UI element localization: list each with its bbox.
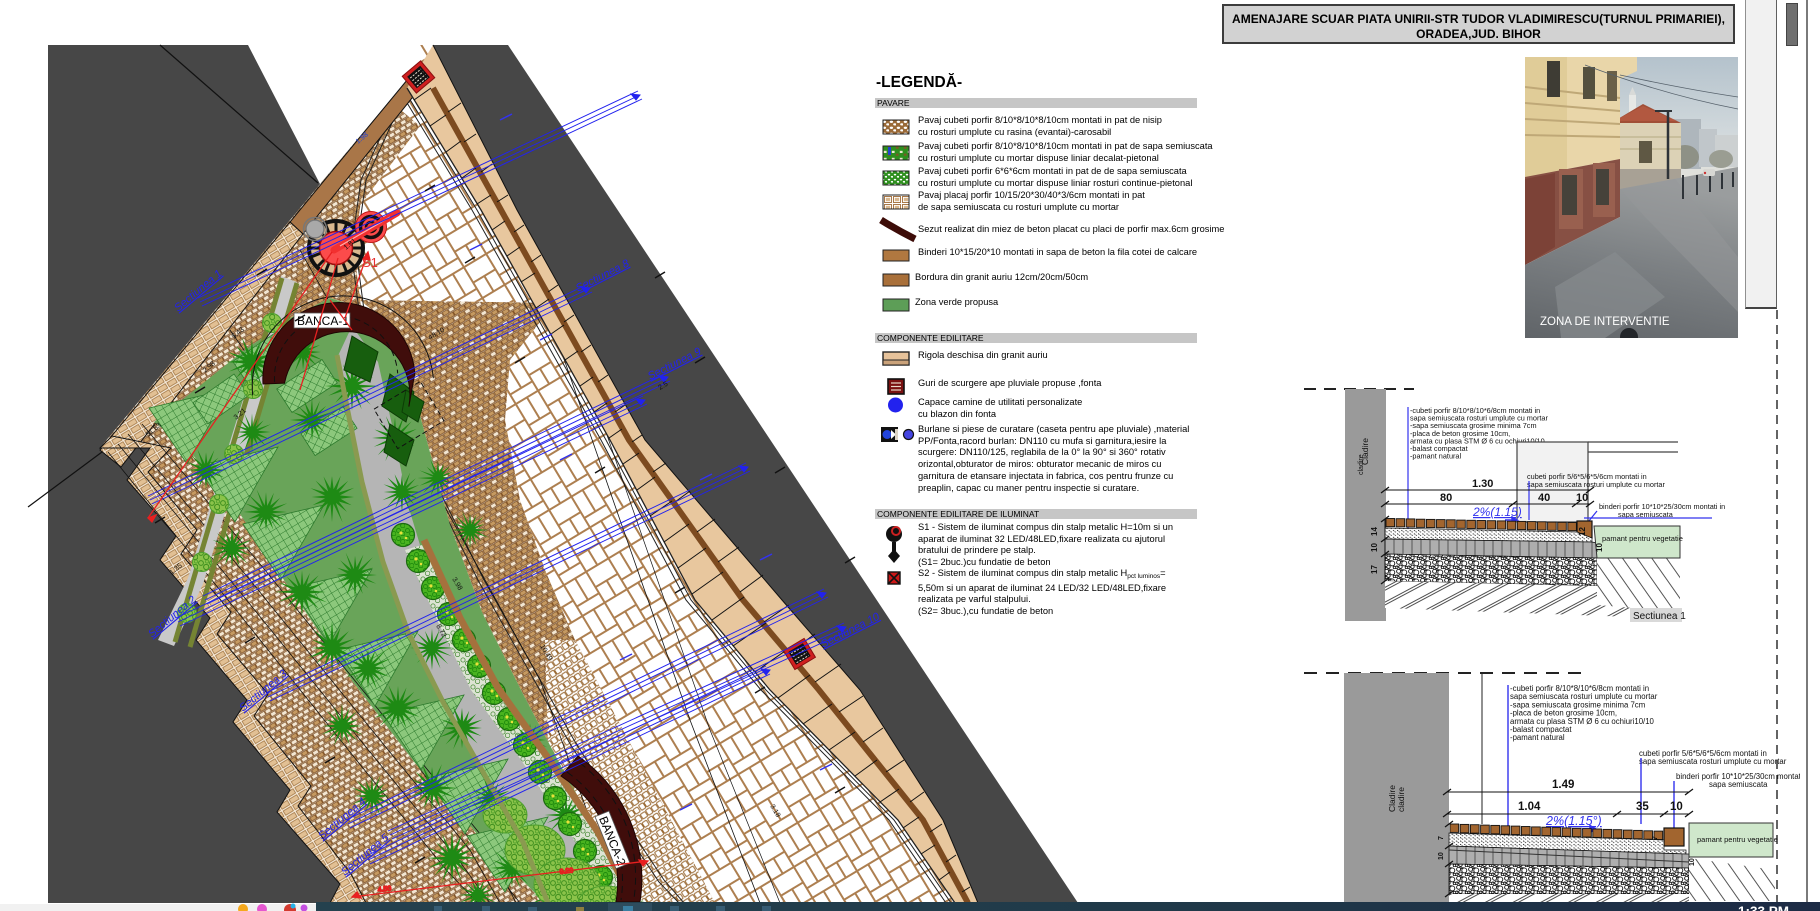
svg-text:1.04: 1.04 <box>1518 801 1541 813</box>
svg-text:17: 17 <box>1370 565 1379 574</box>
svg-text:Sectiunea 1: Sectiunea 1 <box>1633 611 1686 622</box>
svg-text:35: 35 <box>1636 801 1649 813</box>
svg-text:cladire: cladire <box>1396 787 1406 812</box>
svg-text:10: 10 <box>1370 543 1379 552</box>
svg-text:sapa semiuscata rosturi umplut: sapa semiuscata rosturi umplute cu morta… <box>1527 480 1665 489</box>
svg-text:sapa semiuscata rosturi umplut: sapa semiuscata rosturi umplute cu morta… <box>1639 757 1787 766</box>
svg-text:-pamant natural: -pamant natural <box>1510 733 1565 742</box>
svg-text:12: 12 <box>1578 527 1587 536</box>
svg-text:pamant pentru vegetatie: pamant pentru vegetatie <box>1697 835 1778 844</box>
svg-text:2%(1.15°): 2%(1.15°) <box>1545 814 1602 828</box>
svg-text:cladire: cladire <box>1358 454 1365 475</box>
svg-text:1.30: 1.30 <box>1472 478 1493 490</box>
svg-text:2%(1.15): 2%(1.15) <box>1472 505 1522 519</box>
svg-text:10: 10 <box>1689 858 1696 866</box>
svg-text:10: 10 <box>1595 543 1604 552</box>
svg-text:10: 10 <box>1438 852 1445 860</box>
svg-text:7: 7 <box>1438 836 1445 840</box>
svg-text:40: 40 <box>1538 492 1550 504</box>
svg-text:pamant pentru vegetatie: pamant pentru vegetatie <box>1602 534 1683 543</box>
svg-text:ZONA DE INTERVENTIE: ZONA DE INTERVENTIE <box>1540 316 1670 328</box>
svg-text:sapa semiuscata: sapa semiuscata <box>1709 780 1768 789</box>
svg-text:80: 80 <box>1440 492 1452 504</box>
svg-text:10: 10 <box>1670 801 1683 813</box>
svg-text:1.49: 1.49 <box>1552 779 1574 791</box>
svg-text:-pamant natural: -pamant natural <box>1410 452 1461 461</box>
svg-text:10: 10 <box>1576 492 1588 504</box>
svg-text:7: 7 <box>1652 836 1659 840</box>
svg-text:14: 14 <box>1370 527 1379 536</box>
